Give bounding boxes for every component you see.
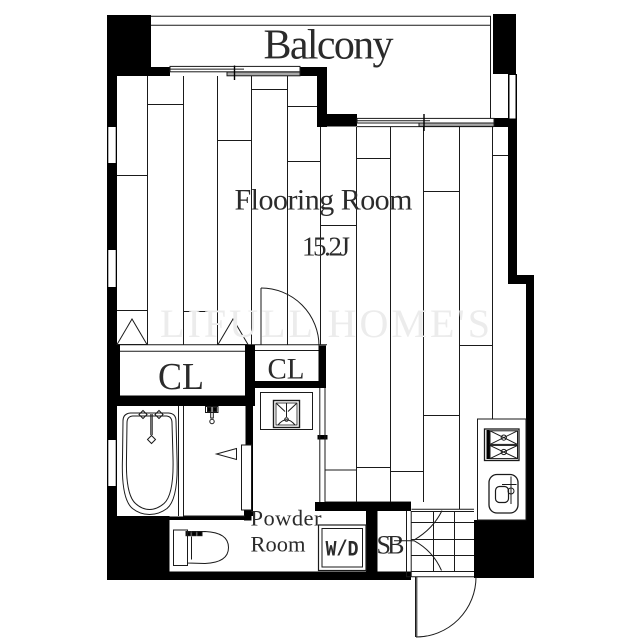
svg-text:CL: CL [268,353,305,386]
svg-text:Flooring Room: Flooring Room [235,184,413,217]
svg-text:CL: CL [158,356,204,398]
svg-text:15.2J: 15.2J [302,232,350,262]
svg-text:W/D: W/D [326,538,359,563]
svg-text:SB: SB [377,531,405,560]
svg-text:Powder: Powder [251,506,323,531]
svg-text:Room: Room [251,532,306,557]
svg-text:Balcony: Balcony [264,23,394,69]
